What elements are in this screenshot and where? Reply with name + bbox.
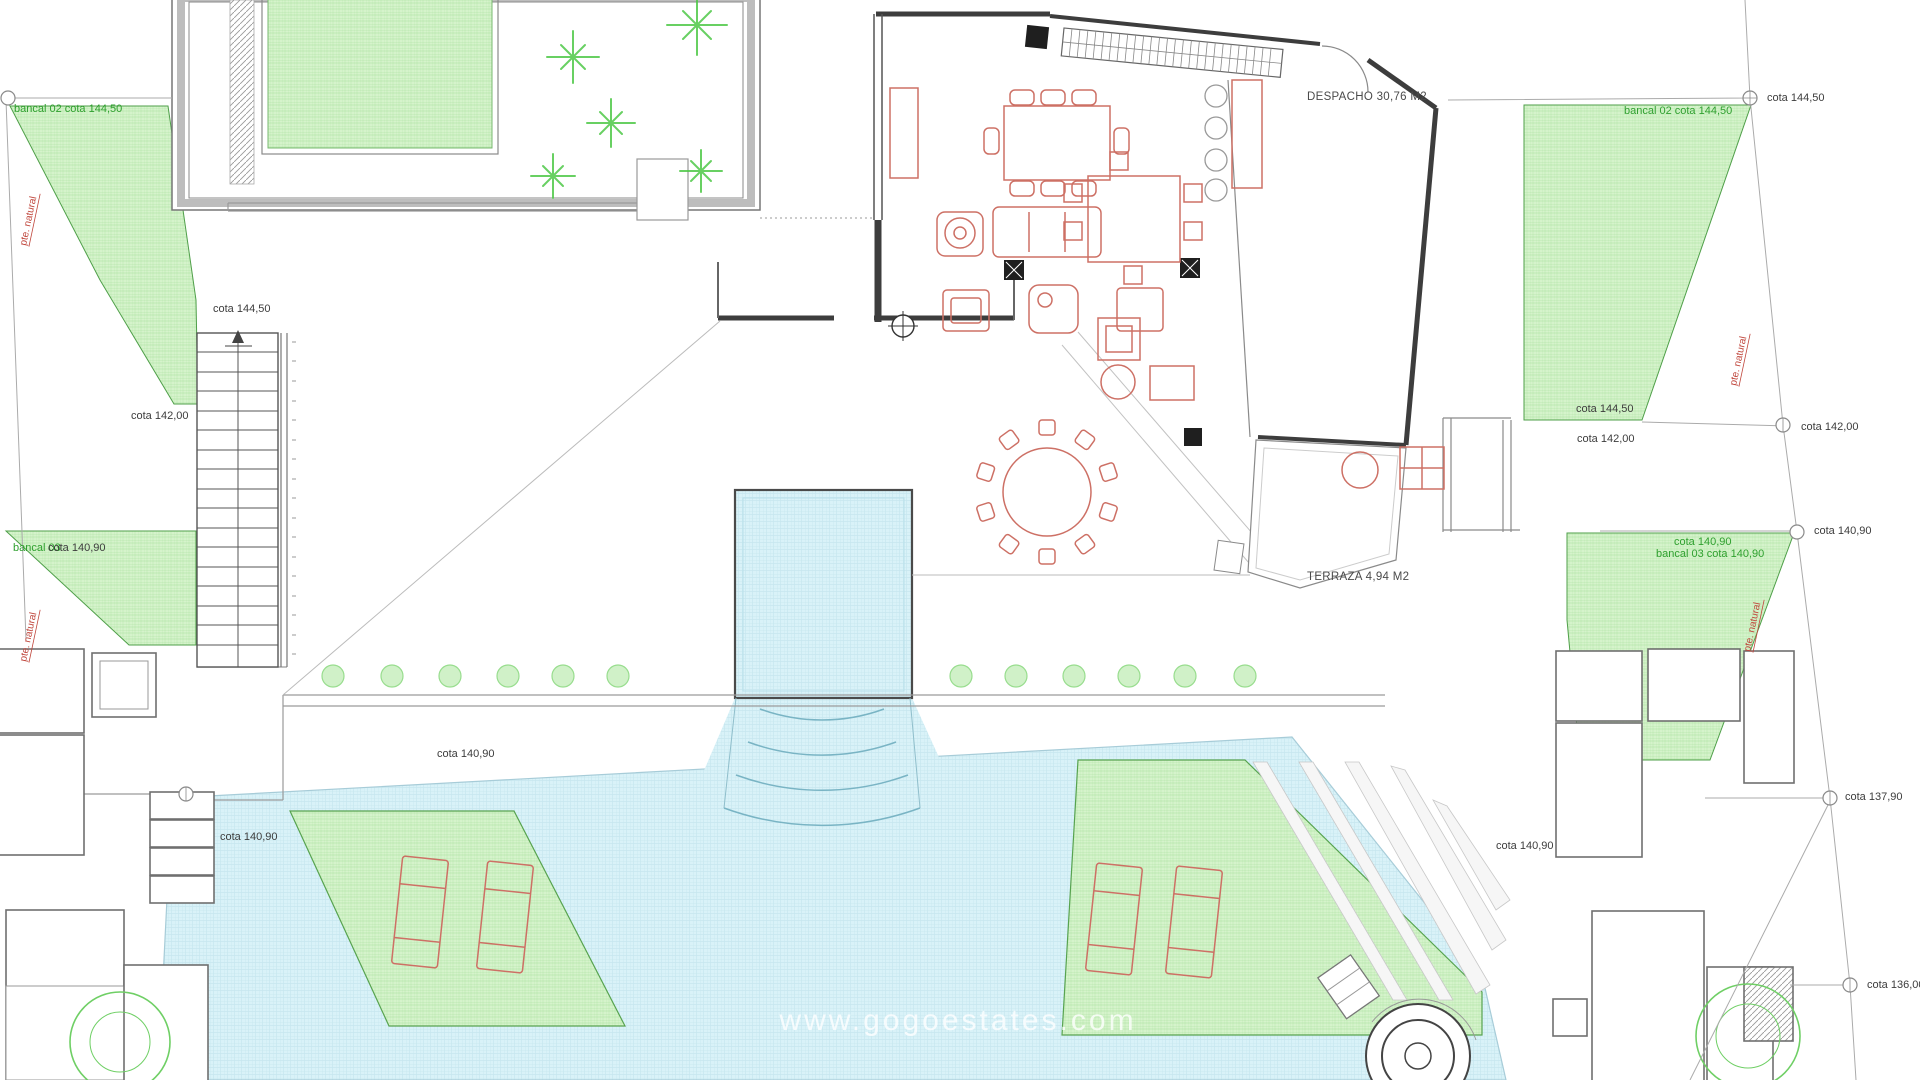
label-bancal03-right: bancal 03 cota 140,90	[1656, 548, 1764, 560]
bar-counter	[1232, 80, 1262, 188]
villa-walls	[718, 14, 1436, 446]
pool-steps-wedge	[688, 698, 962, 808]
sofa-group	[937, 207, 1163, 333]
watermark: www.gogoestates.com	[778, 1004, 1136, 1037]
svg-text:pte. natural: pte. natural	[18, 195, 39, 246]
exterior-staircase	[197, 330, 296, 667]
svg-text:pte. natural: pte. natural	[1728, 335, 1749, 386]
bancal02-left-area	[10, 106, 198, 404]
label-cota144-right-mid: cota 144,50	[1576, 403, 1634, 415]
green-roof	[268, 0, 492, 148]
label-cota144-right-top: cota 144,50	[1767, 92, 1825, 104]
label-bancal02-left: bancal 02 cota 144,50	[14, 103, 122, 115]
label-pte-natural-left1: pte. natural	[18, 192, 40, 247]
label-pte-natural-right1: pte. natural	[1728, 332, 1750, 387]
label-cota144-stairs: cota 144,50	[213, 303, 271, 315]
round-dining-table	[976, 420, 1118, 564]
label-despacho: DESPACHO 30,76 M2	[1307, 91, 1427, 103]
label-bancal02-right: bancal 02 cota 144,50	[1624, 105, 1732, 117]
site-plan-drawing: bancal 02 cota 144,50 cota 144,50 cota 1…	[0, 0, 1920, 1080]
columns	[1004, 25, 1202, 446]
window-wall	[874, 14, 882, 220]
dining-table	[984, 90, 1129, 196]
label-cota140-right-green: cota 140,90	[1674, 536, 1732, 548]
pool-upper-finger	[735, 490, 912, 698]
label-cota140-pool-right: cota 140,90	[1496, 840, 1554, 852]
label-cota136: cota 136,00	[1867, 979, 1920, 991]
label-cota142-right-circle: cota 142,00	[1801, 421, 1859, 433]
label-cota140-left-low: cota 140,90	[220, 831, 278, 843]
sideboard	[890, 88, 918, 178]
entry-door-swing	[1322, 46, 1368, 92]
label-cota140-left: cota 140,90	[48, 542, 106, 554]
pool-side-steps	[150, 792, 214, 903]
hatched-wall-band	[230, 0, 254, 184]
label-cota137: cota 137,90	[1845, 791, 1903, 803]
label-cota140-right-circle: cota 140,90	[1814, 525, 1872, 537]
upper-building	[172, 0, 873, 220]
bancal02-right-area	[1524, 105, 1751, 420]
bar-stools	[1205, 85, 1227, 201]
label-cota142-stairs: cota 142,00	[131, 410, 189, 422]
label-cota140-deck: cota 140,90	[437, 748, 495, 760]
floor-plan-page: bancal 02 cota 144,50 cota 144,50 cota 1…	[0, 0, 1920, 1080]
label-cota142-right-mid: cota 142,00	[1577, 433, 1635, 445]
terraza-platform	[1214, 440, 1406, 588]
label-terraza: TERRAZA 4,94 M2	[1307, 571, 1409, 583]
stair-step-numbers	[292, 342, 296, 654]
